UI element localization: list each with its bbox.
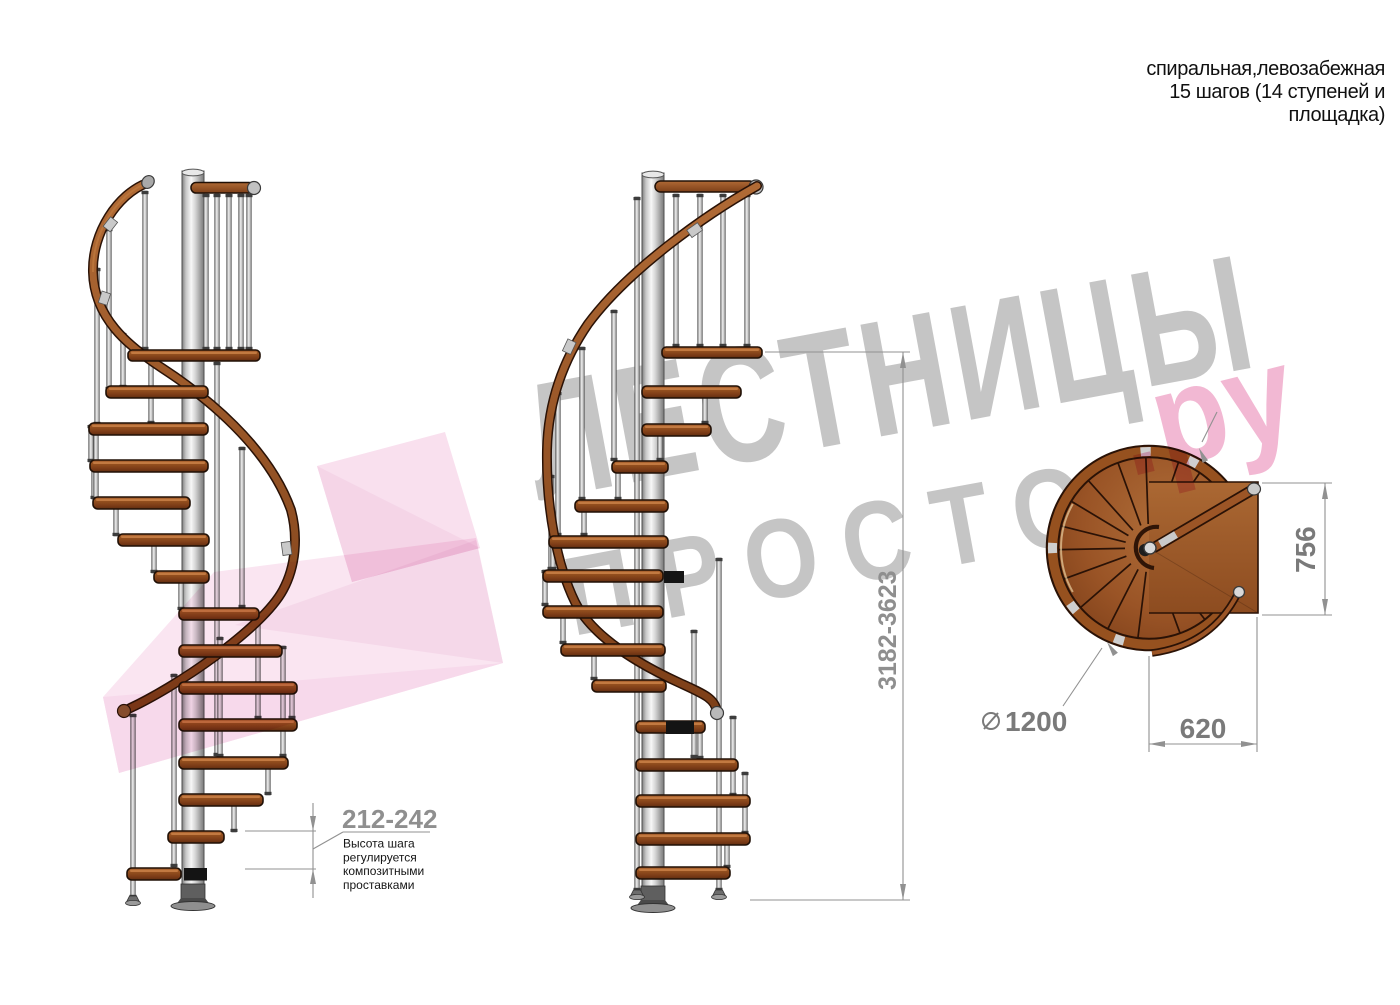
svg-text:Высота шагарегулируетсякомпози: Высота шагарегулируетсякомпозитнымипрост… — [343, 837, 424, 892]
svg-text:212-242: 212-242 — [342, 804, 437, 834]
svg-text:1200: 1200 — [1005, 706, 1067, 737]
svg-text:756: 756 — [1290, 526, 1321, 573]
svg-text:620: 620 — [1180, 713, 1227, 744]
svg-text:3182-3623: 3182-3623 — [874, 570, 902, 690]
